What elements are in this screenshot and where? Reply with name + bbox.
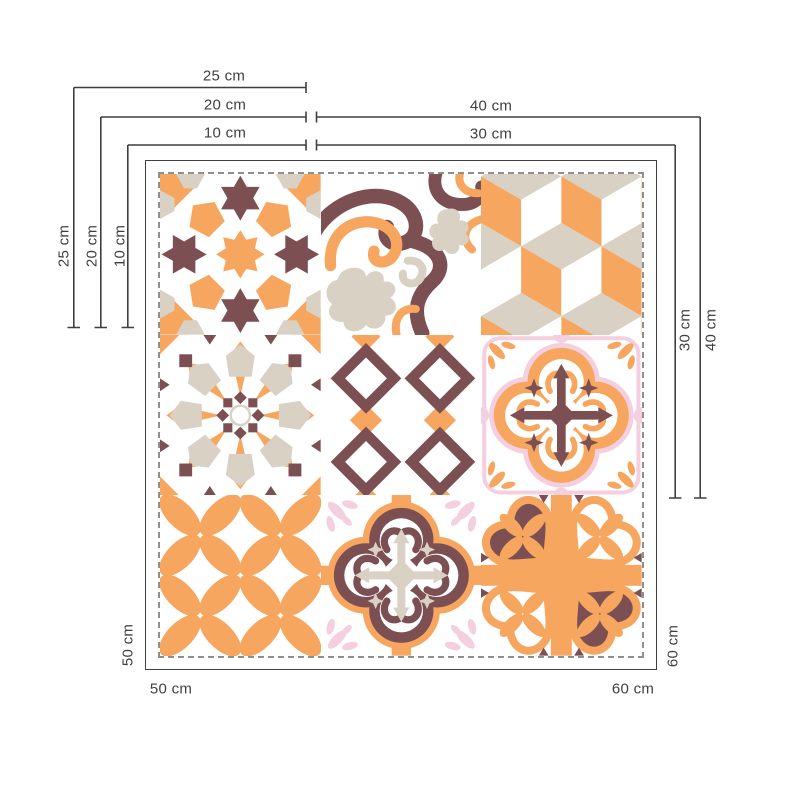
- tile-size-diagram: 25 cm 20 cm 10 cm 40 cm 30 cm 25 cm 20 c…: [0, 0, 800, 800]
- hearts-pinwheel-tile: [481, 495, 642, 656]
- radial-star-tile: [160, 335, 321, 496]
- dim-label-25-left: 25 cm: [56, 225, 73, 267]
- dim-label-10-top: 10 cm: [204, 125, 246, 142]
- orange-quatrefoil-tile: [481, 335, 642, 496]
- dim-label-50-bottom: 50 cm: [150, 681, 192, 698]
- dim-label-25-top: 25 cm: [203, 68, 245, 85]
- diamond-lattice-tile: [321, 335, 482, 496]
- dim-label-30-right: 30 cm: [677, 309, 694, 351]
- dim-label-60-bottom: 60 cm: [612, 681, 654, 698]
- cube-row-2: [481, 223, 642, 316]
- moroccan-star-tile: [160, 174, 321, 335]
- tile-mural: [158, 172, 644, 658]
- maroon-quatrefoil-tile: [321, 495, 482, 656]
- dim-label-20-left: 20 cm: [84, 225, 101, 267]
- isometric-cubes-tile: [481, 174, 642, 335]
- dim-label-10-left: 10 cm: [112, 225, 129, 267]
- dim-label-60-right-vertical: 60 cm: [665, 625, 682, 667]
- dim-label-40-top: 40 cm: [470, 98, 512, 115]
- scroll-ornament-tile: [321, 174, 482, 335]
- dim-label-50-left-vertical: 50 cm: [120, 624, 137, 666]
- circle-petals-tile: [160, 495, 321, 656]
- dim-label-30-top: 30 cm: [470, 126, 512, 143]
- dim-label-40-right: 40 cm: [703, 309, 720, 351]
- dim-label-20-top: 20 cm: [204, 97, 246, 114]
